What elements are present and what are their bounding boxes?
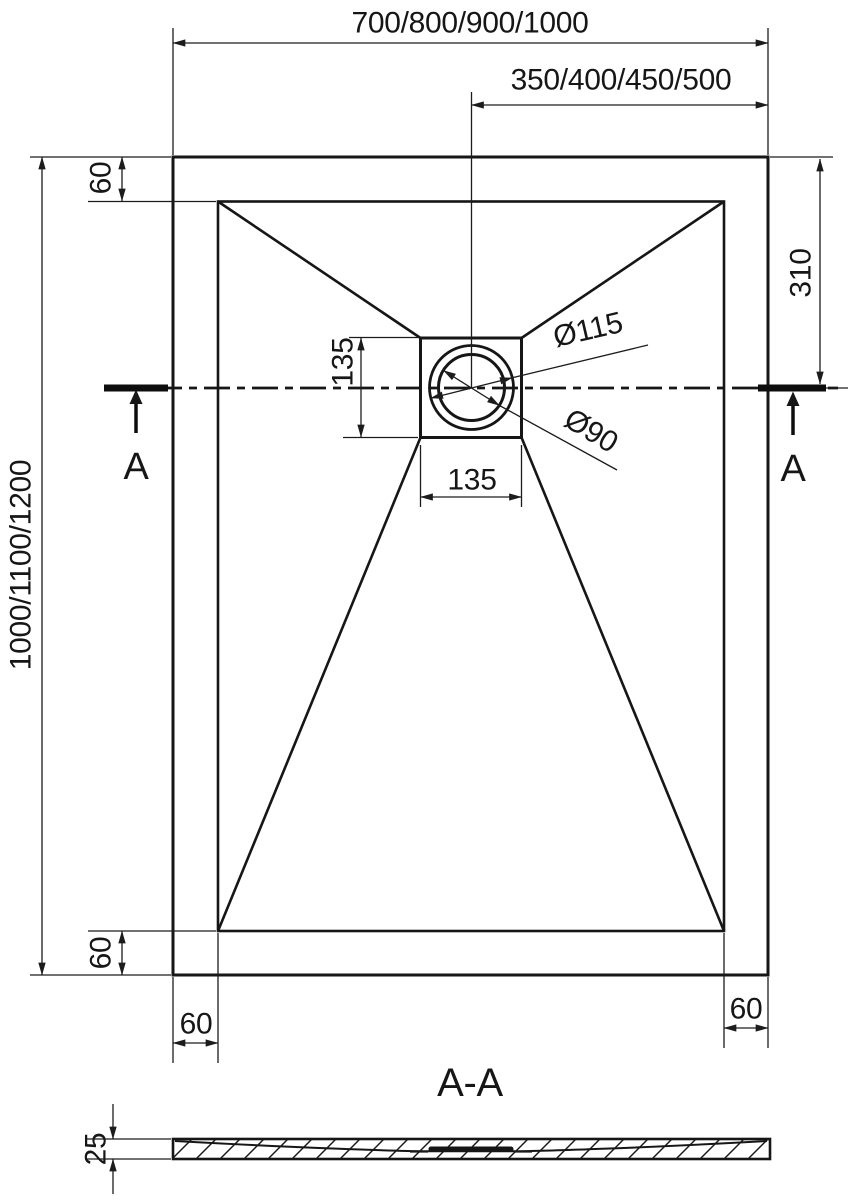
dimension-lines [42, 43, 820, 1043]
dim-drain-box-width-text: 135 [447, 464, 496, 497]
dim-drain-inner-dia-text: Ø90 [559, 402, 624, 459]
dim-rim-right-text: 60 [730, 993, 763, 1026]
section-drain-flange [429, 1147, 514, 1153]
dim-drain-outer-dia-text: Ø115 [550, 306, 626, 354]
cut-arrow-left-head [130, 390, 143, 405]
dim-center-offset-text: 350/400/450/500 [511, 64, 732, 97]
tray-outer-rect [173, 157, 768, 975]
section-thickness-text: 25 [80, 1133, 113, 1166]
section-cut-arrow-right [787, 392, 800, 436]
cut-arrow-right-head [787, 392, 800, 407]
section-cut-arrow-left [130, 390, 143, 434]
section-marker-right-label: A [780, 448, 806, 490]
drawing-sheet: A A [0, 0, 850, 1200]
section-view: A-A 25 [80, 1061, 771, 1194]
top-view: A A [5, 7, 849, 1064]
slope-line-top-right [522, 202, 725, 339]
dim-310-text: 310 [785, 248, 818, 297]
slope-line-bottom-left [218, 438, 421, 932]
section-title: A-A [437, 1061, 503, 1105]
dim-rim-left-text: 60 [180, 1008, 213, 1041]
dim-overall-width-text: 700/800/900/1000 [351, 7, 588, 40]
dim-rim-top-text: 60 [85, 162, 118, 195]
shower-tray-technical-drawing: A A [0, 0, 850, 1200]
slope-line-bottom-right [522, 438, 725, 932]
slope-line-top-left [218, 202, 421, 339]
dim-drain-box-height-text: 135 [327, 337, 360, 386]
dim-rim-bottom-text: 60 [85, 937, 118, 970]
dim-overall-length-text: 1000/1100/1200 [5, 460, 38, 670]
section-marker-left-label: A [123, 446, 149, 488]
dia115-leader [512, 345, 648, 378]
